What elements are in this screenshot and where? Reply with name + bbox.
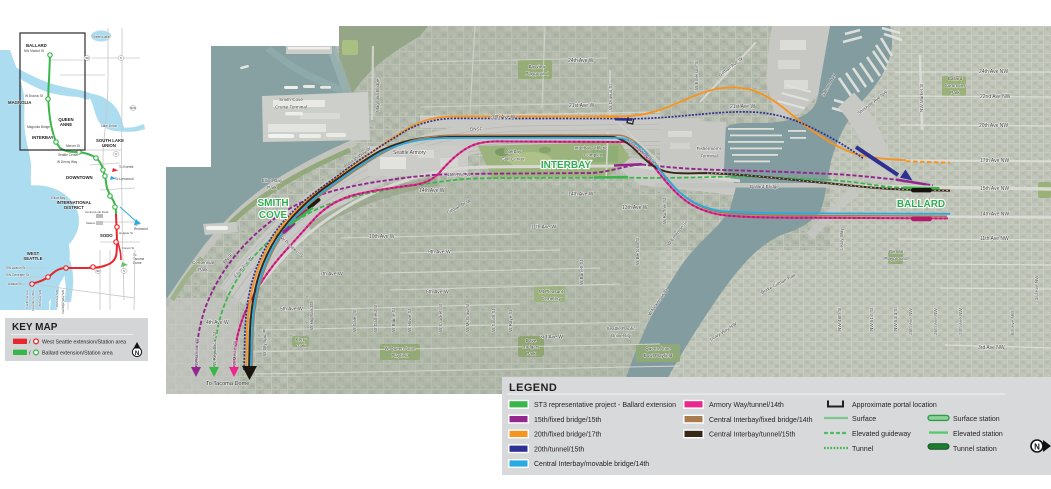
svg-text:BALLARD: BALLARD <box>897 199 945 210</box>
svg-text:Fauntleroy Way: Fauntleroy Way <box>31 290 35 311</box>
svg-text:Delridge Way SW: Delridge Way SW <box>61 290 65 314</box>
svg-text:N: N <box>1034 442 1040 451</box>
svg-text:Bayview: Bayview <box>528 64 546 69</box>
svg-text:BNSF: BNSF <box>470 127 482 132</box>
svg-text:W Mercer St: W Mercer St <box>232 340 237 366</box>
svg-text:NW 51st St: NW 51st St <box>869 307 874 331</box>
svg-text:ANNE: ANNE <box>60 122 72 127</box>
svg-text:15th/fixed bridge/15th: 15th/fixed bridge/15th <box>534 417 601 424</box>
svg-text:NW 48th St: NW 48th St <box>837 307 842 331</box>
svg-text:99: 99 <box>96 269 100 273</box>
svg-text:11th Ave W: 11th Ave W <box>531 225 556 231</box>
svg-text:W Republican St: W Republican St <box>212 331 217 366</box>
svg-text:20th Ave W: 20th Ave W <box>490 115 516 121</box>
svg-text:Park: Park <box>296 344 306 349</box>
svg-text:Bowl Playfield: Bowl Playfield <box>644 353 673 358</box>
svg-text:University: University <box>611 333 632 338</box>
svg-text:Redmond: Redmond <box>134 227 148 231</box>
svg-text:W Highland Dr: W Highland Dr <box>309 300 314 330</box>
svg-text:SODO: SODO <box>100 233 113 238</box>
svg-text:7th Ave W: 7th Ave W <box>320 272 343 278</box>
svg-text:Central Interbay/tunnel/15th: Central Interbay/tunnel/15th <box>709 432 795 439</box>
svg-text:Seattle Armory: Seattle Armory <box>393 150 426 156</box>
svg-text:Park: Park <box>950 90 960 95</box>
svg-text:Alaska St: Alaska St <box>8 282 22 286</box>
svg-text:14th Ave W: 14th Ave W <box>419 188 445 194</box>
svg-text:Elevated station: Elevated station <box>953 431 1003 438</box>
svg-text:21st Ave W: 21st Ave W <box>730 104 755 110</box>
svg-text:Lake Union: Lake Union <box>101 124 117 128</box>
svg-text:California Ave: California Ave <box>25 290 29 309</box>
svg-text:W Queen Anne: W Queen Anne <box>384 346 416 351</box>
svg-text:Cemetery: Cemetery <box>541 296 562 301</box>
svg-text:W Emerson St: W Emerson St <box>694 60 699 90</box>
svg-text:SW Genesee St: SW Genesee St <box>6 273 29 277</box>
svg-text:Fishermen's: Fishermen's <box>697 146 723 151</box>
svg-text:W Dravus St: W Dravus St <box>25 94 43 98</box>
svg-text:DISTRICT: DISTRICT <box>64 205 84 210</box>
svg-text:To Tacoma Dome: To Tacoma Dome <box>206 381 249 387</box>
svg-text:ST3 representative project - B: ST3 representative project - Ballard ext… <box>534 402 676 409</box>
svg-text:Playground: Playground <box>884 256 908 261</box>
svg-text:28th Ave NW: 28th Ave NW <box>908 308 913 335</box>
svg-text:Central Interbay/fixed bridge/: Central Interbay/fixed bridge/14th <box>709 417 813 424</box>
svg-text:W Blaine St: W Blaine St <box>391 307 396 332</box>
svg-text:Queen Anne: Queen Anne <box>645 346 671 351</box>
svg-text:24th Ave NW: 24th Ave NW <box>979 69 1008 75</box>
svg-text:Ballard: Ballard <box>948 76 963 81</box>
svg-text:Tunnel station: Tunnel station <box>953 446 997 453</box>
svg-text:Dave: Dave <box>526 338 537 343</box>
svg-text:520: 520 <box>130 106 135 110</box>
svg-text:Playground: Playground <box>525 71 549 76</box>
svg-text:BALLARD: BALLARD <box>26 43 47 48</box>
svg-text:3rd Ave NW: 3rd Ave NW <box>978 345 1005 351</box>
svg-text:3rd Ave NW: 3rd Ave NW <box>1034 275 1039 300</box>
svg-text:Centennial: Centennial <box>192 260 214 265</box>
svg-text:NW 53rd St: NW 53rd St <box>893 307 898 331</box>
svg-text:Elevated guideway: Elevated guideway <box>852 431 911 438</box>
svg-text:Smith Cove: Smith Cove <box>279 97 303 102</box>
svg-text:Surface station: Surface station <box>953 416 1000 423</box>
svg-text:COVE: COVE <box>259 210 288 221</box>
svg-text:Interbay: Interbay <box>505 149 522 154</box>
svg-text:9th Ave W: 9th Ave W <box>428 250 451 256</box>
svg-text:Terminal: Terminal <box>700 154 717 159</box>
svg-text:Mt Pleasant: Mt Pleasant <box>539 289 564 294</box>
svg-text:14th Ave NW: 14th Ave NW <box>980 212 1009 218</box>
svg-text:Kerry: Kerry <box>296 337 308 342</box>
svg-text:3rd Ave W: 3rd Ave W <box>540 335 563 341</box>
svg-text:Magnolia Bridge: Magnolia Bridge <box>27 125 50 129</box>
svg-text:SW Avalon St: SW Avalon St <box>6 266 26 270</box>
svg-text:W Harrison St: W Harrison St <box>194 337 199 366</box>
svg-text:W Garfield St: W Garfield St <box>373 304 378 332</box>
svg-text:West Seattle extension/Station: West Seattle extension/Station area <box>42 340 126 346</box>
svg-text:Armory Way/tunnel/14th: Armory Way/tunnel/14th <box>709 402 784 409</box>
svg-text:NW Market St: NW Market St <box>919 83 924 112</box>
svg-text:24th Ave NW: 24th Ave NW <box>958 308 963 335</box>
svg-text:Elliott Bay: Elliott Bay <box>262 178 283 183</box>
svg-text:Ballard Bridge: Ballard Bridge <box>750 184 779 189</box>
svg-text:20th/tunnel/15th: 20th/tunnel/15th <box>534 446 584 453</box>
svg-text:15th Ave W: 15th Ave W <box>447 172 471 177</box>
svg-text:W McGraw St: W McGraw St <box>465 303 470 332</box>
svg-text:Dome: Dome <box>133 261 142 265</box>
svg-text:W Bertona St: W Bertona St <box>635 237 640 265</box>
svg-text:24th Ave W: 24th Ave W <box>568 58 594 64</box>
svg-text:UNION: UNION <box>102 143 116 148</box>
svg-text:INTERBAY: INTERBAY <box>32 135 54 140</box>
svg-text:Magnolia Bridge: Magnolia Bridge <box>375 78 380 112</box>
svg-text:Mercer St: Mercer St <box>66 144 80 148</box>
svg-text:W Galer St: W Galer St <box>352 309 357 332</box>
svg-text:22nd Ave NW: 22nd Ave NW <box>980 94 1011 100</box>
svg-text:13th Ave W: 13th Ave W <box>622 205 648 211</box>
svg-text:20th Ave NW: 20th Ave NW <box>979 123 1008 129</box>
svg-text:21st Ave W: 21st Ave W <box>569 103 594 109</box>
svg-text:20th/fixed bridge/17th: 20th/fixed bridge/17th <box>534 432 601 439</box>
svg-text:6th Ave NW: 6th Ave NW <box>1010 310 1015 335</box>
svg-text:W Dravus St: W Dravus St <box>608 83 613 110</box>
svg-text:To Lynnwood: To Lynnwood <box>115 177 134 181</box>
svg-text:W Barrett St: W Barrett St <box>579 259 584 285</box>
svg-text:LEGEND: LEGEND <box>509 382 557 394</box>
svg-text:Leary Way: Leary Way <box>839 228 844 250</box>
svg-text:5th Ave W: 5th Ave W <box>280 307 303 313</box>
svg-text:DOWNTOWN: DOWNTOWN <box>66 175 93 180</box>
svg-text:W Raye St: W Raye St <box>508 309 513 332</box>
svg-text:Interbay Athletic: Interbay Athletic <box>575 146 608 151</box>
svg-text:KEY MAP: KEY MAP <box>12 322 58 333</box>
svg-text:Green Lake: Green Lake <box>92 35 110 39</box>
svg-text:Complex: Complex <box>584 153 603 158</box>
svg-text:4th Ave W: 4th Ave W <box>206 320 229 326</box>
svg-text:W Crockett St: W Crockett St <box>438 303 443 332</box>
svg-text:Approximate portal location: Approximate portal location <box>852 402 937 409</box>
svg-text:To Everett: To Everett <box>119 165 133 169</box>
svg-text:Seattle Pacific: Seattle Pacific <box>606 326 636 331</box>
svg-text:Ballard extension/Station area: Ballard extension/Station area <box>42 351 113 357</box>
svg-text:Tunnel: Tunnel <box>852 446 874 453</box>
svg-text:MAGNOLIA: MAGNOLIA <box>8 100 31 105</box>
svg-text:W Olympic Pl: W Olympic Pl <box>262 328 267 356</box>
svg-text:14th Ave W: 14th Ave W <box>568 192 594 198</box>
svg-text:99: 99 <box>85 56 89 60</box>
svg-text:Playfield: Playfield <box>391 353 409 358</box>
svg-text:Forest St: Forest St <box>122 246 134 250</box>
svg-text:SMITH: SMITH <box>257 198 288 209</box>
svg-text:Park: Park <box>267 185 277 190</box>
svg-text:Gilman: Gilman <box>889 249 904 254</box>
svg-text:26th Ave NW: 26th Ave NW <box>933 308 938 335</box>
svg-text:Park: Park <box>198 267 208 272</box>
svg-text:INTERBAY: INTERBAY <box>541 160 592 171</box>
svg-text:W Howe St: W Howe St <box>407 308 412 332</box>
svg-text:W Denny Way: W Denny Way <box>57 160 78 164</box>
svg-text:Rodgers: Rodgers <box>522 345 540 350</box>
svg-text:W Smith St: W Smith St <box>491 308 496 332</box>
svg-text:35th Ave SW: 35th Ave SW <box>38 290 42 307</box>
svg-text:Holgate St: Holgate St <box>119 231 133 235</box>
svg-text:Central Interbay/movable bridg: Central Interbay/movable bridge/14th <box>534 461 649 468</box>
svg-text:Surface: Surface <box>852 416 876 423</box>
svg-text:Golf Center: Golf Center <box>501 157 525 162</box>
svg-text:Park: Park <box>526 351 536 356</box>
svg-text:N: N <box>135 351 139 357</box>
svg-text:6th Ave W: 6th Ave W <box>426 290 449 296</box>
svg-text:17th Ave NW: 17th Ave NW <box>980 158 1009 164</box>
svg-text:Cruise Terminal: Cruise Terminal <box>275 105 307 110</box>
svg-text:15th Ave NW: 15th Ave NW <box>980 186 1009 192</box>
svg-text:Commons: Commons <box>945 83 967 88</box>
svg-text:CenturyLink Field: CenturyLink Field <box>85 210 109 214</box>
svg-text:26th Ave SW: 26th Ave SW <box>55 290 59 307</box>
svg-text:SEATTLE: SEATTLE <box>23 256 42 261</box>
svg-text:NW Market St: NW Market St <box>24 49 44 53</box>
svg-text:10th Ave W: 10th Ave W <box>369 234 395 240</box>
svg-text:Seattle Center: Seattle Center <box>58 153 79 157</box>
svg-text:11th Ave NW: 11th Ave NW <box>980 236 1009 242</box>
svg-text:W Ruffner St: W Ruffner St <box>662 197 667 224</box>
